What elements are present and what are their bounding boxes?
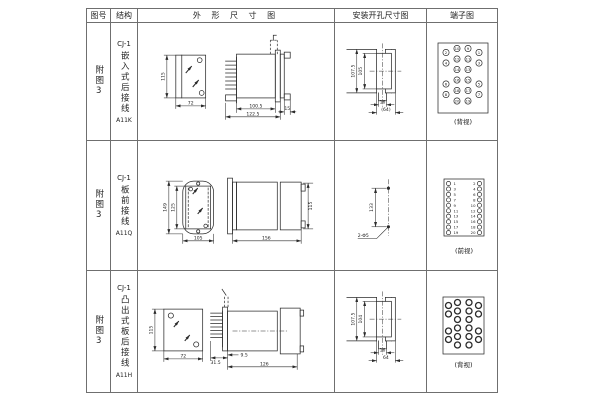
row2-front-view: 149 125 105 xyxy=(162,181,213,244)
terminal-number: 7 xyxy=(478,91,481,96)
row3-front-view: 115 72 xyxy=(148,309,202,362)
row3-figure-label: 附图3 xyxy=(94,315,103,348)
terminal-number: 14 xyxy=(471,213,476,218)
dim-total-length: 122.5 xyxy=(246,111,259,117)
terminal-number: 11 xyxy=(466,56,471,61)
row3-model: CJ-1 xyxy=(117,284,131,292)
dim-mount-stub: 16 xyxy=(380,347,386,353)
row3-structure-cell: CJ-1 凸出式板后接线 A11H xyxy=(111,271,138,392)
dim-side-height: 115 xyxy=(308,201,314,210)
dim-front-width: 72 xyxy=(180,353,186,359)
dim-front-height: 115 xyxy=(148,326,154,335)
row2-view-label: (前视) xyxy=(455,246,473,255)
terminal-number: 1 xyxy=(478,49,481,54)
terminal-number: 11 xyxy=(454,208,459,213)
row1-model: CJ-1 xyxy=(117,40,131,48)
terminal-number: 12 xyxy=(471,208,476,213)
terminal-number: 3 xyxy=(454,186,457,191)
dim-mount-outer: 107.5 xyxy=(350,313,356,326)
row3-terminal-drawing: (背视) xyxy=(427,271,497,392)
terminal-block-outline xyxy=(443,297,484,354)
row2-figure-label: 附图3 xyxy=(94,189,103,222)
terminal-number: 8 xyxy=(445,91,448,96)
row2-model: CJ-1 xyxy=(117,174,131,182)
row1-outline-cell: 115 72 100.5 xyxy=(138,23,335,141)
dim-inner-height: 125 xyxy=(170,203,176,212)
dim-outer-height: 149 xyxy=(162,203,168,212)
dim-mount-inner: 104 xyxy=(358,315,364,324)
row2-structure-cell: CJ-1 板前接线 A11Q xyxy=(111,141,138,271)
dim-body-length: 100.5 xyxy=(249,103,262,109)
row1-view-label: (背视) xyxy=(454,117,472,126)
terminal-number: 15 xyxy=(454,219,459,224)
row2-mounting-cell: 133 2-Φ5 xyxy=(335,141,427,271)
row3-view-label: (背视) xyxy=(454,360,472,369)
terminal-number: 9 xyxy=(454,202,457,207)
dim-front-width: 105 xyxy=(194,235,203,241)
terminal-number: 12 xyxy=(455,56,460,61)
handle-dashed-outline xyxy=(225,295,228,307)
row2-mounting-drawing: 133 2-Φ5 xyxy=(335,141,426,271)
terminal-number: 8 xyxy=(473,197,476,202)
terminal-number: 18 xyxy=(455,87,460,92)
terminal-number: 6 xyxy=(473,191,476,196)
row1-outline-drawing: 115 72 100.5 xyxy=(138,23,334,141)
dim-side-length: 126 xyxy=(260,361,269,367)
row2-outline-cell: 149 125 105 156 xyxy=(138,141,335,271)
row1-structure-desc: 嵌入式后接线 xyxy=(120,51,129,114)
terminal-number: 14 xyxy=(455,66,460,71)
dim-front-height: 115 xyxy=(160,72,166,81)
row3-outline-drawing: 115 72 9.5 xyxy=(138,271,334,392)
terminal-number: 2 xyxy=(473,181,476,186)
dim-mount-outer: 107.5 xyxy=(350,64,356,77)
row1-mounting-drawing: 107.5 105 16 (64) xyxy=(335,23,426,141)
row3-side-view: 9.5 31.5 126 xyxy=(211,289,304,370)
terminal-number: 13 xyxy=(466,66,471,71)
dim-hole-spacing: 133 xyxy=(369,203,375,212)
dim-pin-length: 31.5 xyxy=(211,360,221,366)
row3-figure-cell: 附图3 xyxy=(87,271,111,392)
handle-dashed-outline xyxy=(270,40,277,54)
terminal-number: 4 xyxy=(445,60,448,65)
terminal-number: 16 xyxy=(471,219,476,224)
row3-structure-desc: 凸出式板后接线 xyxy=(120,295,129,369)
dim-mount-width: 64 xyxy=(383,355,389,361)
header-outline-dimensions: 外 形 尺 寸 图 xyxy=(138,9,335,23)
terminal-number: 5 xyxy=(478,81,481,86)
row1-front-view: 115 72 xyxy=(160,55,205,109)
row3-outline-cell: 115 72 9.5 xyxy=(138,271,335,392)
row2-side-view: 156 115 xyxy=(228,178,315,244)
terminal-number: 10 xyxy=(471,202,476,207)
header-structure: 结构 xyxy=(111,9,138,23)
header-terminal-diagram: 端子图 xyxy=(427,9,497,23)
row2-terminal-pins: 1 2 3 4 5 6 7 8 9 10 11 12 13 14 xyxy=(446,181,481,235)
row1-terminal-pins: 2 10 9 1 4 12 11 3 14 13 6 16 15 5 8 18 … xyxy=(443,45,482,104)
terminal-number: 19 xyxy=(454,230,459,235)
row2-structure-desc: 板前接线 xyxy=(120,185,129,227)
terminal-number: 18 xyxy=(471,224,476,229)
row3-terminal-cell: (背视) xyxy=(427,271,497,392)
terminal-number: 20 xyxy=(455,98,460,103)
terminal-number: 15 xyxy=(466,77,471,82)
header-figure-number: 图号 xyxy=(87,9,111,23)
row1-figure-cell: 附图3 xyxy=(87,23,111,141)
row3-mounting-drawing: 107.5 104 16 64 xyxy=(335,271,426,392)
terminal-number: 20 xyxy=(471,230,476,235)
row1-mounting-cell: 107.5 105 16 (64) xyxy=(335,23,427,141)
terminal-number: 17 xyxy=(466,87,471,92)
terminal-number: 16 xyxy=(455,77,460,82)
terminal-number: 7 xyxy=(454,197,457,202)
dim-mount-width: (64) xyxy=(381,107,391,113)
row3-mounting-cell: 107.5 104 16 64 xyxy=(335,271,427,392)
row2-hole-layout: 133 2-Φ5 xyxy=(358,179,390,239)
terminal-number: 4 xyxy=(473,186,476,191)
terminal-number: 2 xyxy=(445,49,448,54)
terminal-number: 17 xyxy=(454,224,459,229)
row2-outline-drawing: 149 125 105 156 xyxy=(138,141,334,271)
terminal-number: 6 xyxy=(445,81,448,86)
row3-terminal-pins xyxy=(446,300,482,349)
dim-flange-depth: 15 xyxy=(284,105,290,111)
row1-side-view: 100.5 122.5 15 xyxy=(226,35,297,120)
terminal-number: 1 xyxy=(454,181,457,186)
dim-hole-callout: 2-Φ5 xyxy=(358,233,369,239)
dim-mount-inner: 105 xyxy=(358,66,364,75)
row1-structure-cell: CJ-1 嵌入式后接线 A11K xyxy=(111,23,138,141)
row2-terminal-cell: 1 2 3 4 5 6 7 8 9 10 11 12 13 14 xyxy=(427,141,497,271)
header-mounting-holes: 安装开孔尺寸图 xyxy=(335,9,427,23)
datasheet-table: 图号 结构 外 形 尺 寸 图 安装开孔尺寸图 端子图 附图3 CJ-1 嵌入式… xyxy=(86,8,498,393)
dim-side-length: 156 xyxy=(262,235,271,241)
row1-terminal-cell: 2 10 9 1 4 12 11 3 14 13 6 16 15 5 8 18 … xyxy=(427,23,497,141)
row1-figure-label: 附图3 xyxy=(94,65,103,98)
terminal-number: 10 xyxy=(455,45,460,50)
row2-code: A11Q xyxy=(116,230,132,237)
terminal-number: 9 xyxy=(467,45,470,50)
row2-terminal-drawing: 1 2 3 4 5 6 7 8 9 10 11 12 13 14 xyxy=(427,141,497,271)
row3-code: A11H xyxy=(116,372,132,379)
terminal-number: 3 xyxy=(478,60,481,65)
terminal-number: 13 xyxy=(454,213,459,218)
row1-code: A11K xyxy=(116,117,132,124)
terminal-number: 19 xyxy=(466,98,471,103)
dim-mount-stub: 16 xyxy=(380,99,386,105)
row2-figure-cell: 附图3 xyxy=(87,141,111,271)
dim-front-width: 72 xyxy=(188,100,194,106)
dim-offset: 9.5 xyxy=(240,353,247,359)
terminal-number: 5 xyxy=(454,191,457,196)
row1-terminal-drawing: 2 10 9 1 4 12 11 3 14 13 6 16 15 5 8 18 … xyxy=(427,23,497,141)
